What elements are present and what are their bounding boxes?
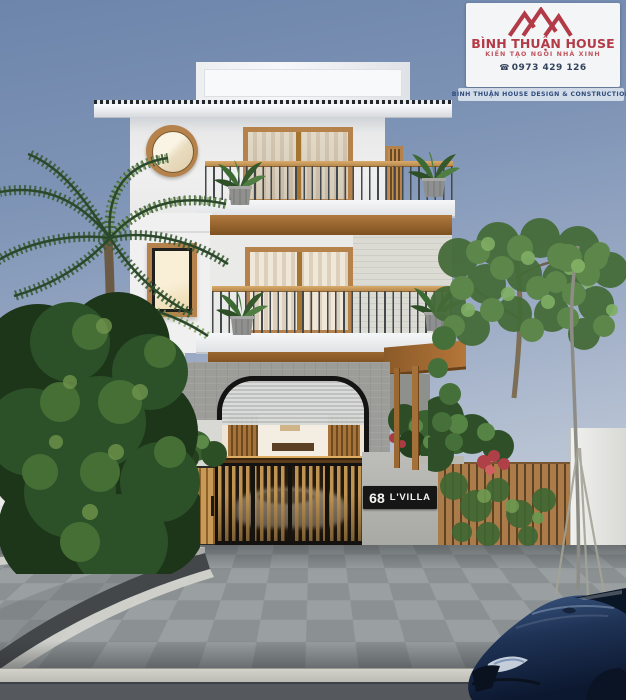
villa-sign: 68 L'VILLA — [363, 486, 437, 509]
garden-tree — [0, 282, 200, 574]
pergola-post — [394, 368, 400, 468]
pergola-post — [412, 366, 419, 470]
gate-stile — [251, 466, 255, 546]
fence-vines — [440, 472, 556, 546]
balcony-wood-soffit — [210, 215, 452, 235]
brand-tagline: KIẾN TẠO NGÔI NHÀ XINH — [485, 51, 601, 60]
balcony-potted-plant — [406, 152, 462, 198]
perforated-screen — [222, 381, 364, 425]
street-trees — [428, 218, 626, 602]
brand-name: BÌNH THUẬN HOUSE — [471, 37, 614, 51]
gate-stile — [325, 466, 329, 546]
arched-entrance — [217, 376, 369, 468]
brand-footer-strip: BÌNH THUẬN HOUSE DESIGN & CONSTRUCTION — [458, 88, 624, 101]
phone-number: 0973 429 126 — [512, 63, 587, 73]
villa-number: 68 — [369, 491, 385, 505]
brand-phone: ☎0973 429 126 — [499, 63, 586, 73]
main-gate — [218, 466, 364, 546]
interior-console — [272, 443, 314, 451]
gate-stile — [288, 466, 292, 546]
rooftop-parapet — [196, 62, 410, 102]
parked-car — [436, 580, 626, 700]
rooftop-parapet-recess — [204, 69, 402, 97]
door-handle — [211, 496, 214, 516]
mountain-peaks-logo-icon — [499, 7, 587, 37]
villa-exterior-render: 68 L'VILLA BÌNH THUẬN HOUSE KIẾN TẠO NGÔ… — [0, 0, 626, 700]
villa-name: L'VILLA — [390, 493, 431, 503]
roof-slab — [94, 104, 452, 118]
phone-icon: ☎ — [499, 63, 509, 72]
brand-watermark-card: BÌNH THUẬN HOUSE KIẾN TẠO NGÔI NHÀ XINH … — [466, 3, 620, 87]
